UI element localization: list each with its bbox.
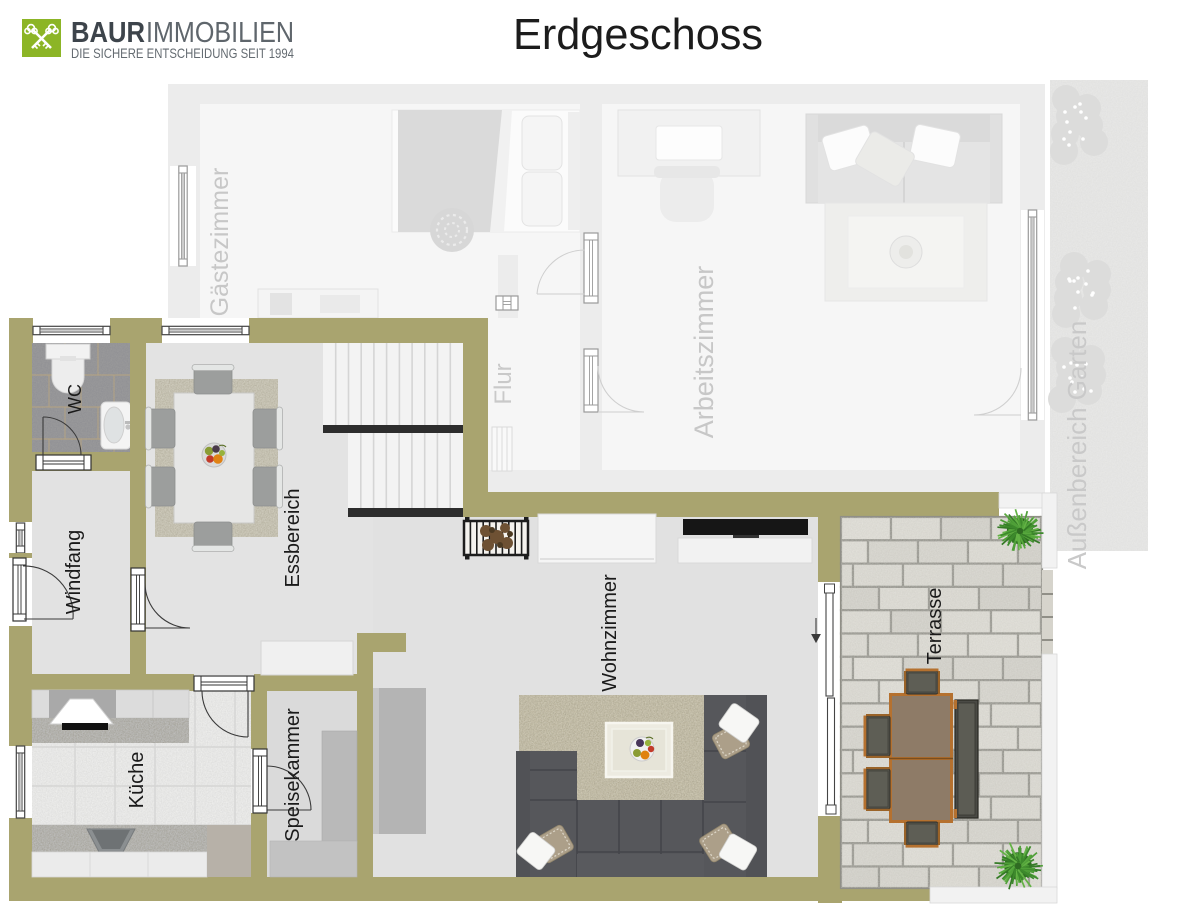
svg-text:Speisekammer: Speisekammer <box>282 708 304 842</box>
svg-text:Außenbereich Garten: Außenbereich Garten <box>1062 321 1092 570</box>
svg-text:Erdgeschoss: Erdgeschoss <box>513 10 763 59</box>
svg-text:BAUR: BAUR <box>71 17 145 49</box>
svg-text:Gästezimmer: Gästezimmer <box>206 168 234 317</box>
svg-text:Essbereich: Essbereich <box>282 489 304 588</box>
svg-text:DIE SICHERE ENTSCHEIDUNG SEIT: DIE SICHERE ENTSCHEIDUNG SEIT 1994 <box>71 46 294 61</box>
svg-text:IMMOBILIEN: IMMOBILIEN <box>146 17 294 49</box>
svg-text:Terrasse: Terrasse <box>924 588 946 665</box>
svg-text:Küche: Küche <box>126 752 148 809</box>
svg-text:Arbeitszimmer: Arbeitszimmer <box>689 266 719 439</box>
svg-text:Flur: Flur <box>490 363 517 404</box>
svg-text:Windfang: Windfang <box>63 530 85 615</box>
svg-text:WC: WC <box>65 384 85 414</box>
svg-text:Wohnzimmer: Wohnzimmer <box>599 574 621 692</box>
